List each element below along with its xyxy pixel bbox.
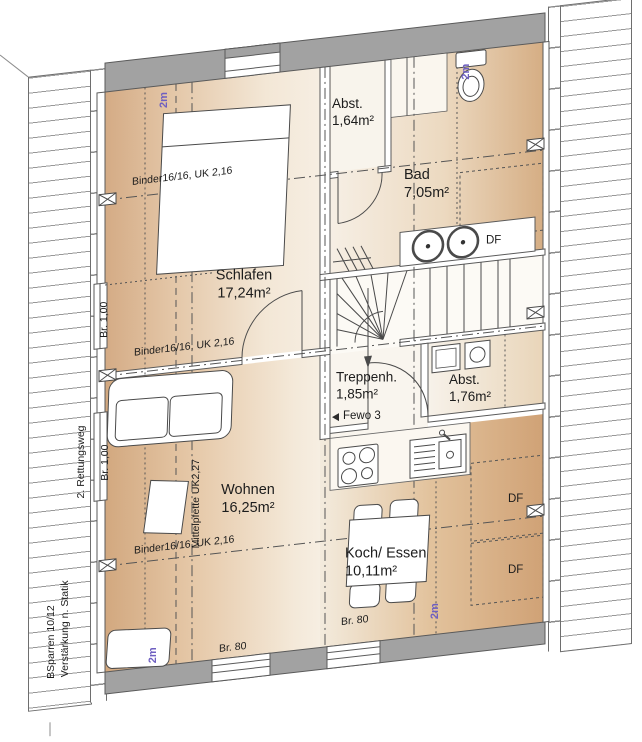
floor-plan-page: Schlafen 17,24m² Abst. 1,64m² Bad 7,05m²… <box>0 0 642 742</box>
opening-width-label-schlafen: Br. 1,00 <box>98 302 110 338</box>
room-label-abstellraum-klein: Abst. 1,64m² <box>332 95 374 129</box>
headroom-2m-label-top-right: 2m <box>460 64 472 80</box>
sofa <box>107 370 233 448</box>
rafters-note-label: BSparren 10/12 <box>45 605 57 679</box>
room-area: 16,25m² <box>193 499 303 517</box>
room-area: 10,11m² <box>345 563 426 581</box>
bed <box>157 105 291 275</box>
stove-icon <box>338 444 378 488</box>
middle-purlin-label: Mittelpfette UK2,27 <box>190 459 202 548</box>
room-label-schlafen: Schlafen 17,24m² <box>188 267 300 303</box>
room-name: Bad <box>404 166 449 184</box>
room-label-wohnen: Wohnen 16,25m² <box>193 481 303 517</box>
room-label-bad: Bad 7,05m² <box>404 166 449 202</box>
roof-window-label-koch-2: DF <box>508 562 523 579</box>
escape-route-label: 2. Rettungsweg <box>75 425 87 498</box>
room-name: Wohnen <box>193 481 303 499</box>
room-name: Schlafen <box>188 267 300 285</box>
opening-width-label-wohnen: Br. 1,00 <box>99 445 111 481</box>
room-label-treppenhaus: Treppenh. 1,85m² <box>336 369 397 403</box>
roof-window-label-koch-1: DF <box>508 491 523 508</box>
floor-plan-drawing: Schlafen 17,24m² Abst. 1,64m² Bad 7,05m²… <box>0 0 642 742</box>
room-name: Abst. <box>332 95 374 112</box>
stair-down-arrow-icon <box>364 356 372 369</box>
door-abstellraum <box>338 172 382 223</box>
room-name: Koch/ Essen <box>345 545 426 563</box>
room-label-koch-essen: Koch/ Essen 10,11m² <box>345 545 426 581</box>
room-area: 1,85m² <box>336 386 397 403</box>
room-area: 1,76m² <box>449 388 491 405</box>
plan-linework <box>0 0 642 742</box>
sideboard <box>106 628 171 669</box>
room-area: 1,64m² <box>332 112 374 129</box>
roof-window-label-bad: DF <box>486 233 501 250</box>
paper-edge-lines <box>0 49 50 742</box>
coffee-table <box>144 480 189 533</box>
headroom-2m-label-bottom-right: 2m <box>429 603 441 619</box>
storage-shelf <box>432 344 460 373</box>
washing-machine-icon <box>465 340 490 369</box>
apartment-entrance-label: Fewo 3 <box>332 408 381 425</box>
headroom-2m-label-bottom-left: 2m <box>147 647 159 663</box>
room-area: 17,24m² <box>188 285 300 303</box>
room-label-abstellraum-flur: Abst. 1,76m² <box>449 371 491 405</box>
entrance-direction-icon <box>332 413 339 421</box>
reinforcement-note-label: Verstärkung n. Statik <box>59 580 71 677</box>
headroom-2m-label-top-left: 2m <box>158 92 170 108</box>
room-name: Treppenh. <box>336 369 397 386</box>
apartment-name: Fewo 3 <box>343 408 381 425</box>
room-area: 7,05m² <box>404 184 449 202</box>
double-washbasin <box>400 217 535 266</box>
room-name: Abst. <box>449 371 491 388</box>
